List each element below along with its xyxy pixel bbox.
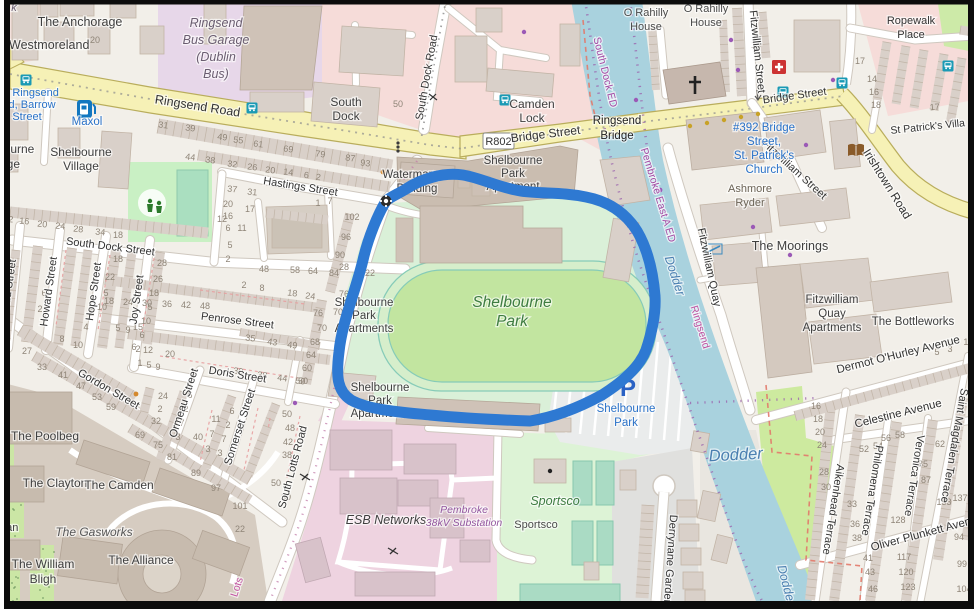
svg-text:22: 22 [365,268,375,278]
svg-text:10: 10 [73,340,83,350]
svg-text:The Poolbeg: The Poolbeg [11,429,79,443]
svg-text:House: House [690,17,722,29]
svg-text:ad, Barrow: ad, Barrow [2,99,55,111]
svg-text:3: 3 [205,444,210,454]
svg-text:20: 20 [815,427,825,437]
svg-text:30: 30 [821,482,831,492]
svg-text:55: 55 [233,134,244,145]
svg-text:O Rahilly: O Rahilly [624,7,669,19]
svg-text:28: 28 [819,467,829,477]
svg-text:The Camden: The Camden [84,478,153,492]
svg-text:35: 35 [245,332,256,343]
svg-text:24: 24 [305,290,316,301]
svg-text:76: 76 [313,308,323,318]
svg-text:8: 8 [259,283,264,293]
svg-text:5: 5 [146,360,151,370]
svg-text:27: 27 [22,346,32,356]
svg-text:123: 123 [900,582,915,592]
svg-text:Place: Place [897,29,925,41]
svg-text:75: 75 [153,440,163,450]
svg-text:Camden: Camden [509,97,554,111]
svg-text:117: 117 [897,552,911,562]
svg-text:2: 2 [241,280,246,290]
svg-text:Park: Park [614,417,638,429]
svg-text:31: 31 [158,119,169,130]
svg-text:30: 30 [142,298,152,308]
svg-text:52: 52 [859,444,869,454]
svg-text:31: 31 [247,187,258,198]
svg-text:137: 137 [952,493,967,503]
svg-text:28: 28 [73,224,84,235]
svg-text:38: 38 [205,154,216,165]
svg-text:38kV Substation: 38kV Substation [426,517,503,529]
svg-text:20: 20 [37,219,48,230]
svg-text:36: 36 [162,299,172,309]
svg-text:69: 69 [135,430,145,440]
svg-text:18: 18 [113,254,123,264]
svg-text:26: 26 [247,161,258,172]
svg-text:Ropewalk: Ropewalk [887,15,936,27]
svg-text:4: 4 [83,322,88,332]
svg-text:18: 18 [287,287,298,298]
svg-text:The Clayton: The Clayton [23,476,88,490]
svg-text:18: 18 [104,296,114,306]
svg-text:49: 49 [217,131,228,142]
svg-text:16: 16 [19,216,30,227]
svg-text:94: 94 [954,532,964,542]
svg-text:20: 20 [165,349,175,359]
svg-text:58: 58 [895,430,905,440]
svg-text:Park: Park [496,313,529,330]
svg-text:17: 17 [929,102,940,113]
svg-text:Dock: Dock [332,109,360,123]
svg-text:#392 Bridge: #392 Bridge [733,122,795,134]
svg-text:Shelbourne: Shelbourne [472,294,552,311]
svg-text:Bligh: Bligh [30,572,57,586]
svg-text:18: 18 [113,230,123,240]
svg-text:42: 42 [283,437,293,447]
svg-text:49: 49 [287,339,298,350]
svg-text:Pembroke: Pembroke [440,504,488,516]
svg-text:16: 16 [869,87,879,97]
svg-text:5: 5 [227,240,232,250]
svg-text:Shelbourne: Shelbourne [335,297,394,309]
svg-text:5: 5 [115,323,120,333]
svg-text:61: 61 [253,138,264,149]
svg-text:Maxol: Maxol [72,116,103,128]
svg-text:9: 9 [155,362,160,372]
svg-text:The Anchorage: The Anchorage [38,15,123,29]
svg-text:The Bottleworks: The Bottleworks [872,316,955,328]
svg-text:House: House [630,21,662,33]
svg-text:59: 59 [106,402,116,412]
svg-text:40: 40 [193,432,203,442]
svg-text:Bus): Bus) [203,67,229,81]
svg-text:128: 128 [890,515,905,525]
svg-text:33: 33 [847,499,857,509]
svg-text:Ringsend: Ringsend [190,16,244,30]
svg-text:41: 41 [863,553,873,563]
svg-text:33: 33 [37,362,47,372]
svg-text:8: 8 [59,334,64,344]
svg-text:Ringsend: Ringsend [593,115,642,127]
svg-text:11: 11 [237,223,246,233]
svg-text:81: 81 [167,452,177,462]
svg-text:Park: Park [352,310,376,322]
svg-text:56: 56 [881,433,891,443]
svg-text:50: 50 [282,409,292,419]
svg-text:Bus Garage: Bus Garage [183,33,250,47]
svg-text:20: 20 [223,199,233,209]
svg-text:14: 14 [283,166,294,177]
svg-text:e Westmoreland: e Westmoreland [0,38,89,52]
svg-text:22: 22 [235,524,245,534]
svg-text:41: 41 [58,370,68,380]
svg-text:Church: Church [745,164,782,176]
svg-text:Ashmore: Ashmore [728,183,772,195]
svg-text:46: 46 [868,584,878,594]
svg-text:1: 1 [137,358,142,368]
svg-text:18: 18 [813,414,823,424]
svg-text:87: 87 [345,152,356,163]
svg-text:Street,: Street, [747,136,781,148]
svg-text:60: 60 [302,363,312,373]
svg-text:14: 14 [867,74,877,84]
svg-text:96: 96 [341,232,351,242]
svg-text:7: 7 [209,429,214,439]
svg-text:39: 39 [185,122,196,133]
svg-text:20: 20 [265,164,276,175]
svg-text:1: 1 [315,198,320,208]
svg-text:28: 28 [157,258,167,268]
svg-text:50: 50 [393,99,403,109]
svg-text:102: 102 [344,212,359,222]
svg-text:Ryder: Ryder [735,197,765,209]
svg-text:7: 7 [221,434,226,444]
svg-text:44: 44 [185,151,196,162]
svg-text:43: 43 [865,567,875,577]
svg-text:48: 48 [285,423,295,433]
svg-text:22: 22 [105,272,115,282]
svg-text:93: 93 [360,157,371,168]
svg-text:Lock: Lock [519,111,545,125]
svg-text:Fitzwilliam: Fitzwilliam [805,294,858,306]
svg-text:84: 84 [329,268,339,278]
svg-text:79: 79 [315,148,326,159]
svg-text:24: 24 [817,440,827,450]
svg-text:48: 48 [200,301,210,311]
svg-text:28: 28 [339,262,349,272]
svg-text:Apartments: Apartments [803,322,862,334]
svg-text:Sportsco: Sportsco [514,519,557,531]
svg-text:Quay: Quay [818,308,846,320]
svg-text:R802: R802 [485,136,511,148]
svg-text:97: 97 [211,483,221,493]
svg-text:Shelbourne: Shelbourne [50,145,112,159]
svg-text:6: 6 [225,223,230,233]
svg-text:18: 18 [871,100,881,110]
svg-text:99: 99 [957,559,967,569]
svg-text:32: 32 [227,158,238,169]
svg-text:Shelbourne: Shelbourne [351,382,410,394]
svg-text:Shelbourne: Shelbourne [597,403,656,415]
svg-text:90: 90 [335,250,345,260]
svg-text:70: 70 [317,323,327,333]
svg-text:17: 17 [245,204,255,214]
svg-text:3: 3 [217,448,222,458]
svg-text:58: 58 [290,265,300,275]
svg-text:48: 48 [259,264,269,274]
svg-text:17: 17 [855,56,865,66]
svg-text:2: 2 [157,404,162,414]
svg-text:16: 16 [811,401,821,411]
svg-text:69: 69 [283,143,294,154]
svg-text:O Rahilly: O Rahilly [684,3,729,15]
svg-text:32: 32 [151,416,161,426]
svg-text:68: 68 [310,337,320,347]
svg-text:62: 62 [935,439,945,449]
svg-text:101: 101 [232,501,247,511]
svg-text:2: 2 [225,254,230,264]
svg-text:5 Ringsend: 5 Ringsend [3,87,59,99]
svg-text:34: 34 [95,227,106,238]
svg-text:44: 44 [277,372,288,383]
svg-text:53: 53 [92,392,102,402]
svg-text:Village: Village [63,159,99,173]
svg-text:43: 43 [267,336,278,347]
svg-text:St. Patrick's: St. Patrick's [734,150,795,162]
svg-text:24: 24 [55,221,66,232]
svg-text:2: 2 [225,420,230,430]
svg-text:9: 9 [125,325,130,335]
svg-text:64: 64 [306,350,316,360]
svg-text:Street: Street [12,111,41,123]
svg-text:The Moorings: The Moorings [752,239,828,253]
svg-text:Park: Park [501,168,525,180]
svg-text:37: 37 [227,184,238,195]
svg-text:6: 6 [229,406,234,416]
svg-text:20: 20 [90,35,100,45]
svg-text:Sportsco: Sportsco [530,494,579,508]
svg-text:12: 12 [143,345,153,355]
svg-text:South: South [330,95,361,109]
svg-text:87: 87 [921,475,931,485]
svg-text:26: 26 [153,274,163,284]
svg-text:50: 50 [271,478,281,488]
svg-text:42: 42 [181,300,191,310]
svg-text:36: 36 [850,519,860,529]
svg-text:Bridge: Bridge [600,130,633,142]
svg-text:12: 12 [217,214,227,224]
svg-text:24: 24 [158,391,168,401]
svg-text:50: 50 [298,376,308,386]
svg-text:ESB Networks: ESB Networks [346,513,427,527]
svg-text:Dodder: Dodder [708,445,764,466]
svg-text:The William: The William [12,557,75,571]
svg-text:89: 89 [191,468,201,478]
svg-text:6: 6 [131,342,136,352]
svg-text:11: 11 [211,414,220,424]
svg-text:The Gasworks: The Gasworks [55,525,132,539]
svg-text:Shelbourne: Shelbourne [484,155,543,167]
svg-text:18: 18 [149,288,159,298]
svg-text:47: 47 [76,381,86,391]
svg-text:120: 120 [898,567,913,577]
svg-text:The Alliance: The Alliance [108,553,174,567]
svg-text:64: 64 [308,266,318,276]
svg-text:(Dublin: (Dublin [196,50,236,64]
